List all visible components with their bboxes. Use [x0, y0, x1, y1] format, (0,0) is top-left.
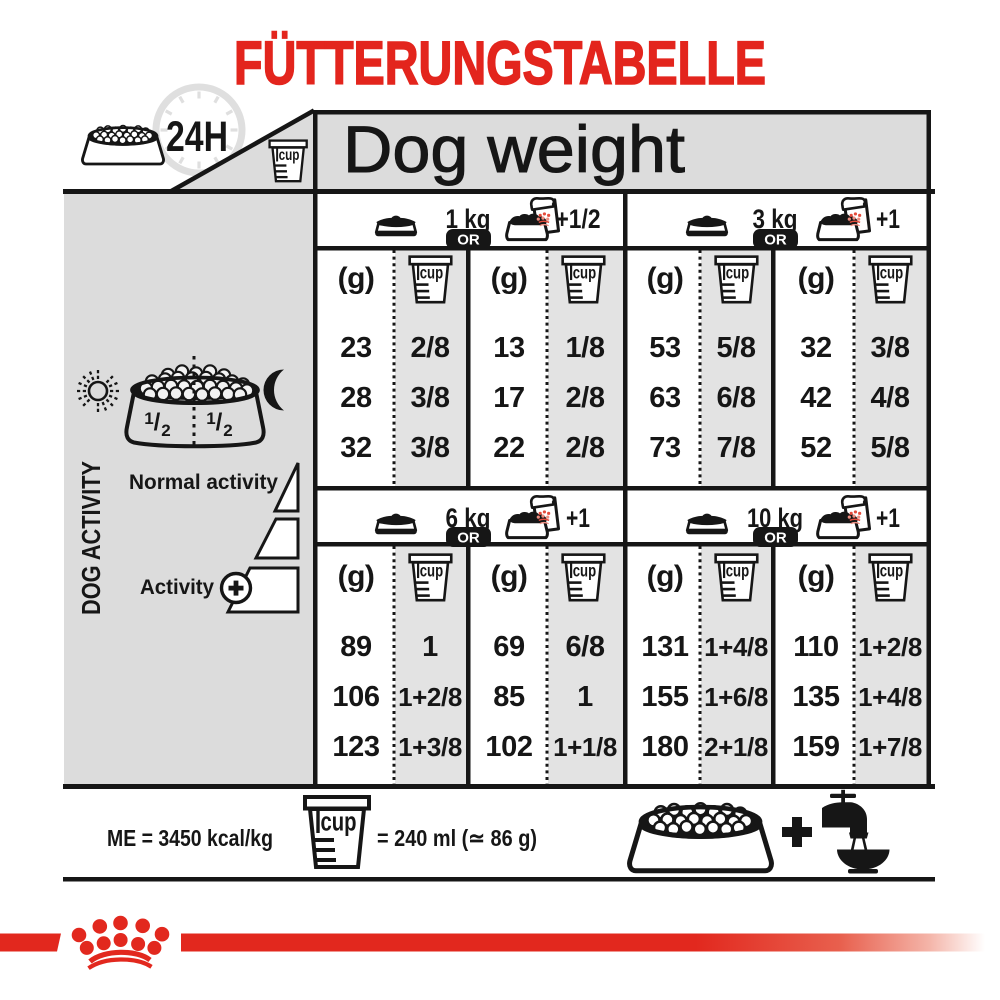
svg-text:DOG ACTIVITY: DOG ACTIVITY	[76, 461, 106, 615]
svg-text:Dog weight: Dog weight	[343, 112, 685, 186]
svg-text:73: 73	[649, 432, 681, 464]
svg-text:= 240 ml (≃ 86 g): = 240 ml (≃ 86 g)	[377, 825, 537, 851]
svg-text:1: 1	[422, 631, 438, 663]
svg-text:32: 32	[800, 332, 831, 364]
svg-text:1+2/8: 1+2/8	[398, 682, 462, 712]
svg-text:(g): (g)	[647, 560, 684, 593]
svg-text:131: 131	[641, 631, 688, 663]
svg-text:1+1/8: 1+1/8	[553, 732, 617, 762]
svg-text:23: 23	[340, 332, 372, 364]
svg-text:6/8: 6/8	[716, 382, 755, 414]
svg-text:2: 2	[161, 421, 170, 440]
svg-text:2/8: 2/8	[565, 432, 604, 464]
svg-text:2+1/8: 2+1/8	[704, 732, 768, 762]
svg-text:102: 102	[485, 731, 532, 763]
svg-text:63: 63	[649, 382, 681, 414]
svg-text:13: 13	[493, 332, 525, 364]
svg-text:1: 1	[206, 409, 215, 428]
svg-text:69: 69	[493, 631, 525, 663]
svg-text:22: 22	[493, 432, 524, 464]
svg-text:FÜTTERUNGSTABELLE: FÜTTERUNGSTABELLE	[234, 29, 766, 97]
svg-text:(g): (g)	[491, 262, 528, 295]
svg-text:OR: OR	[764, 530, 787, 547]
svg-text:1+7/8: 1+7/8	[858, 732, 922, 762]
svg-text:(g): (g)	[491, 560, 528, 593]
svg-text:155: 155	[641, 681, 688, 713]
svg-text:180: 180	[641, 731, 688, 763]
svg-text:1+6/8: 1+6/8	[704, 682, 768, 712]
svg-text:1+3/8: 1+3/8	[398, 732, 462, 762]
svg-text:2: 2	[223, 421, 232, 440]
svg-text:1: 1	[577, 681, 593, 713]
svg-text:28: 28	[340, 382, 372, 414]
svg-text:1/8: 1/8	[565, 332, 604, 364]
svg-text:+1: +1	[876, 503, 900, 533]
svg-text:4/8: 4/8	[870, 382, 909, 414]
svg-text:52: 52	[800, 432, 831, 464]
svg-text:ME = 3450 kcal/kg: ME = 3450 kcal/kg	[107, 825, 273, 851]
svg-text:1+2/8: 1+2/8	[858, 632, 922, 662]
svg-text:24H: 24H	[166, 113, 228, 161]
svg-text:106: 106	[332, 681, 379, 713]
svg-text:3/8: 3/8	[870, 332, 909, 364]
svg-text:53: 53	[649, 332, 681, 364]
svg-text:5/8: 5/8	[870, 432, 909, 464]
svg-text:(g): (g)	[798, 262, 835, 295]
svg-text:6/8: 6/8	[565, 631, 604, 663]
svg-text:(g): (g)	[338, 560, 375, 593]
svg-text:2/8: 2/8	[565, 382, 604, 414]
svg-text:123: 123	[332, 731, 379, 763]
svg-text:+1: +1	[566, 503, 590, 533]
svg-text:3/8: 3/8	[410, 382, 449, 414]
svg-text:85: 85	[493, 681, 525, 713]
svg-text:1+4/8: 1+4/8	[704, 632, 768, 662]
svg-text:Activity: Activity	[140, 575, 214, 599]
svg-text:110: 110	[793, 631, 839, 663]
svg-text:/: /	[216, 409, 223, 436]
svg-text:5/8: 5/8	[716, 332, 755, 364]
svg-text:1: 1	[144, 409, 153, 428]
svg-text:(g): (g)	[798, 560, 835, 593]
svg-text:/: /	[154, 409, 161, 436]
svg-text:OR: OR	[457, 232, 480, 249]
svg-text:2/8: 2/8	[410, 332, 449, 364]
svg-text:17: 17	[493, 382, 524, 414]
svg-text:(g): (g)	[338, 262, 375, 295]
svg-text:135: 135	[792, 681, 839, 713]
svg-text:89: 89	[340, 631, 372, 663]
svg-text:(g): (g)	[647, 262, 684, 295]
svg-text:1+4/8: 1+4/8	[858, 682, 922, 712]
svg-text:159: 159	[792, 731, 839, 763]
svg-text:+1: +1	[876, 204, 900, 234]
svg-text:3/8: 3/8	[410, 432, 449, 464]
svg-text:+1/2: +1/2	[556, 204, 601, 234]
svg-text:Normal activity: Normal activity	[129, 470, 278, 494]
svg-text:7/8: 7/8	[716, 432, 755, 464]
svg-text:OR: OR	[457, 530, 480, 547]
svg-text:OR: OR	[764, 232, 787, 249]
svg-text:42: 42	[800, 382, 831, 414]
svg-text:32: 32	[340, 432, 371, 464]
